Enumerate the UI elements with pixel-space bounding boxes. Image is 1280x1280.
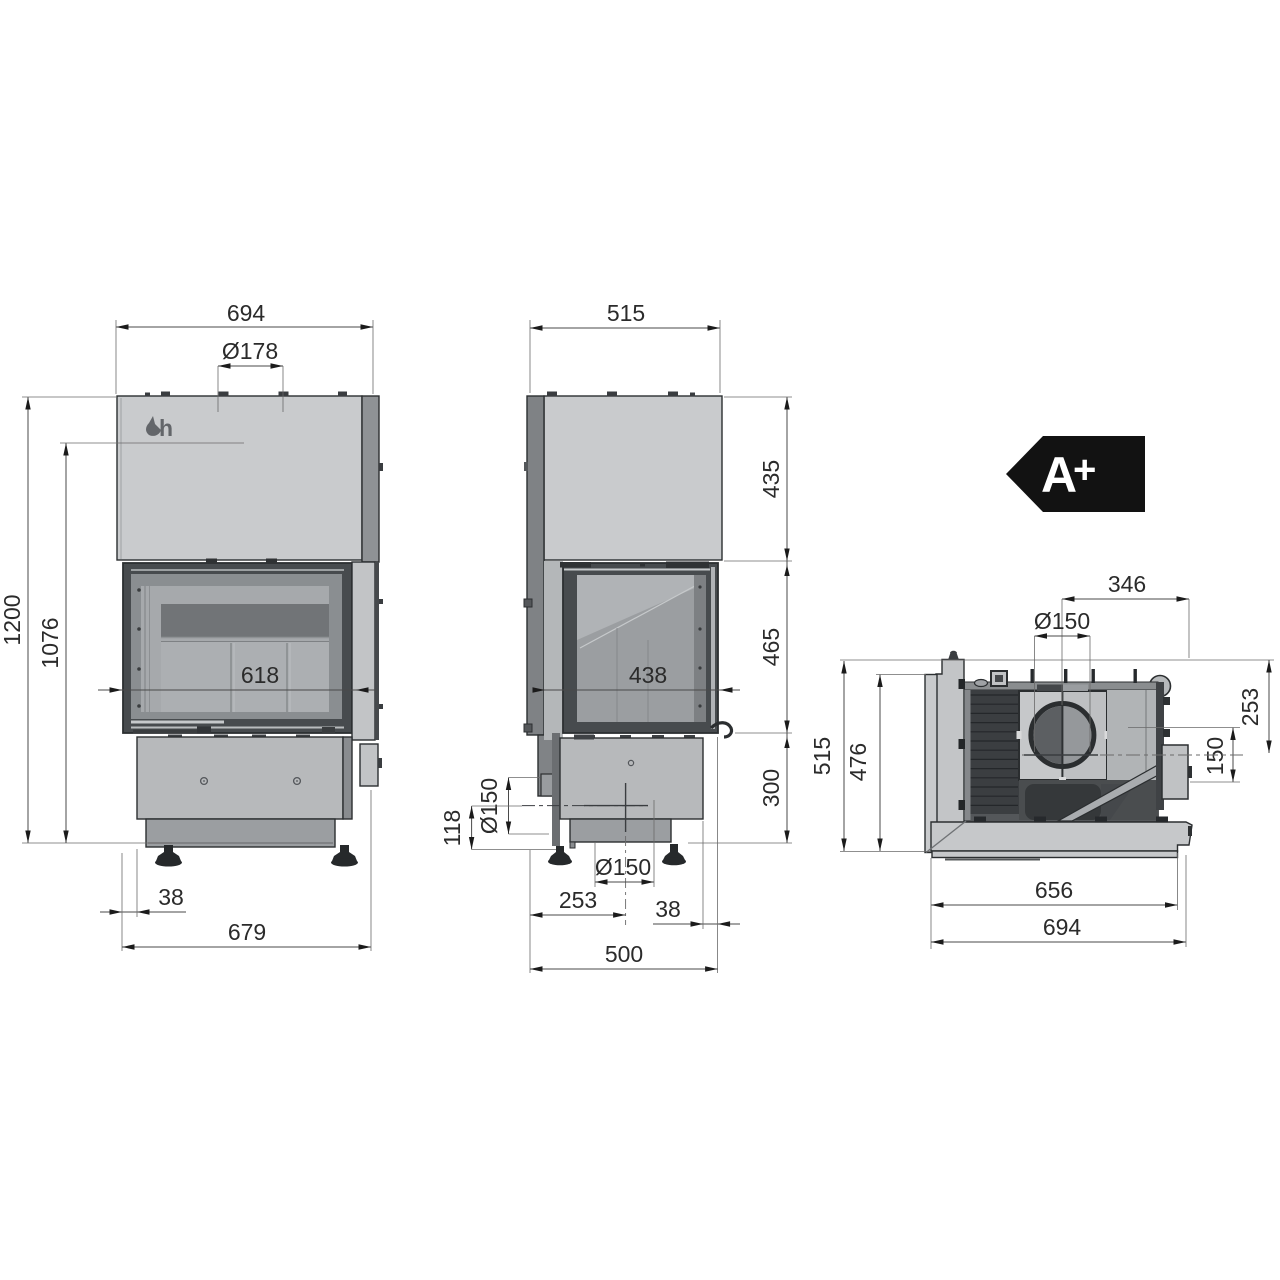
svg-text:1200: 1200: [0, 594, 25, 645]
svg-text:253: 253: [559, 887, 597, 913]
svg-text:656: 656: [1035, 877, 1073, 903]
svg-text:438: 438: [629, 662, 667, 688]
svg-text:694: 694: [227, 300, 266, 326]
svg-text:694: 694: [1043, 914, 1082, 940]
svg-text:346: 346: [1108, 571, 1146, 597]
svg-text:465: 465: [758, 628, 784, 666]
svg-text:+: +: [1073, 448, 1096, 492]
svg-text:38: 38: [158, 884, 184, 910]
svg-text:150: 150: [1202, 737, 1228, 775]
svg-text:118: 118: [439, 810, 465, 847]
svg-text:300: 300: [758, 769, 784, 807]
svg-text:38: 38: [655, 896, 681, 922]
svg-text:679: 679: [228, 919, 266, 945]
svg-text:A: A: [1041, 447, 1077, 503]
svg-text:h: h: [159, 415, 173, 441]
svg-text:515: 515: [809, 737, 835, 775]
svg-text:500: 500: [605, 941, 643, 967]
svg-text:253: 253: [1237, 688, 1263, 726]
svg-text:476: 476: [845, 743, 871, 781]
svg-text:515: 515: [607, 300, 645, 326]
svg-text:618: 618: [241, 662, 279, 688]
svg-text:1076: 1076: [37, 617, 63, 668]
svg-text:Ø150: Ø150: [1034, 608, 1090, 634]
svg-text:Ø178: Ø178: [222, 338, 278, 364]
svg-text:435: 435: [758, 460, 784, 498]
svg-text:Ø150: Ø150: [595, 854, 651, 880]
